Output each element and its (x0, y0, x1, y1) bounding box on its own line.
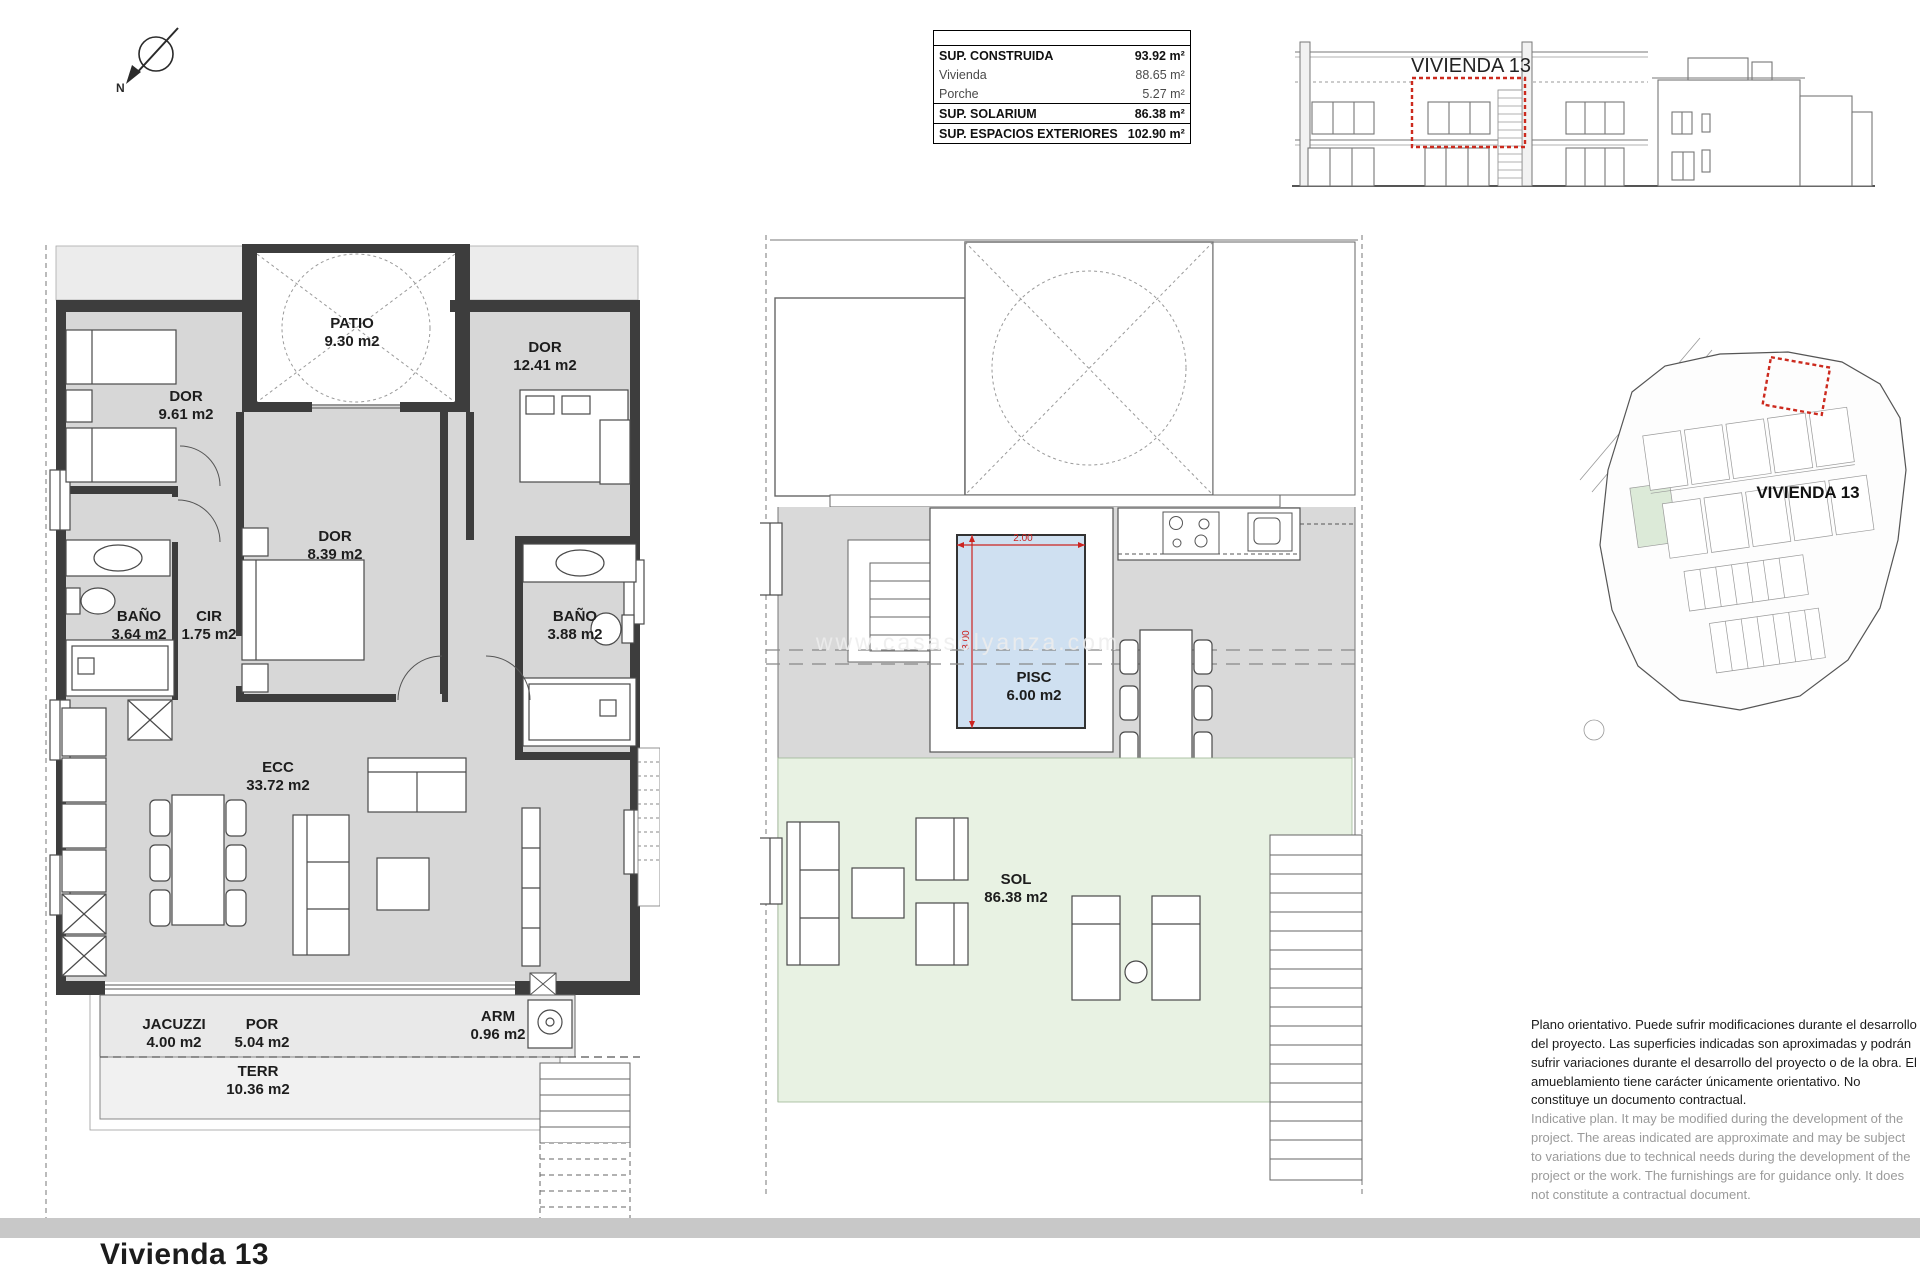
bed (520, 390, 630, 484)
disclaimer: Plano orientativo. Puede sufrir modifica… (1531, 1016, 1919, 1204)
table-row: SUP. ESPACIOS EXTERIORES 102.90 m² (934, 124, 1191, 144)
room-label: DOR (528, 339, 562, 356)
elevation-windows (1308, 102, 1624, 186)
page-title: Vivienda 13 (100, 1238, 269, 1272)
room-label: BAÑO (553, 607, 597, 625)
disclaimer-spanish: Plano orientativo. Puede sufrir modifica… (1531, 1016, 1919, 1110)
room-label: PISC (1016, 669, 1051, 686)
room-area: 3.64 m2 (111, 626, 166, 643)
room-label: SOL (1001, 871, 1032, 888)
area-label: SUP. SOLARIUM (934, 104, 1123, 124)
room-area: 10.36 m2 (226, 1081, 289, 1098)
room-label: TERR (238, 1063, 279, 1080)
room-area: 3.88 m2 (547, 626, 602, 643)
room-label: JACUZZI (142, 1016, 205, 1033)
area-value: 93.92 m² (1123, 46, 1190, 66)
table-row: SUP. CONSTRUIDA 93.92 m² (934, 46, 1191, 66)
room-area: 4.00 m2 (146, 1034, 201, 1051)
area-value: 86.38 m² (1123, 104, 1190, 124)
side-stair (638, 748, 660, 906)
room-area: 1.75 m2 (181, 626, 236, 643)
stair-hatch (1498, 90, 1522, 186)
room-area: 6.00 m2 (1006, 687, 1061, 704)
area-value: 88.65 m² (1123, 65, 1190, 84)
room-area: 33.72 m2 (246, 777, 309, 794)
elevation-unit-label: VIVIENDA 13 (1411, 55, 1531, 77)
floor-plan-solarium: 2.00 3.00 (760, 230, 1370, 1200)
room-area: 8.39 m2 (307, 546, 362, 563)
table-row (934, 31, 1191, 46)
entry-block (530, 973, 556, 995)
room-area: 86.38 m2 (984, 889, 1047, 906)
room-label: DOR (318, 528, 352, 545)
room-label: DOR (169, 388, 203, 405)
area-label: Porche (934, 84, 1123, 104)
room-label: POR (246, 1016, 279, 1033)
areas-table: SUP. CONSTRUIDA 93.92 m² Vivienda 88.65 … (933, 30, 1191, 144)
footer-bar (0, 1218, 1920, 1238)
site-unit-label: VIVIENDA 13 (1756, 483, 1859, 502)
watermark: www.casasolyanza.com (815, 629, 1120, 655)
table-row: Vivienda 88.65 m² (934, 65, 1191, 84)
area-value: 102.90 m² (1123, 124, 1190, 144)
neighbor-building (1652, 58, 1872, 186)
room-area: 9.30 m2 (324, 333, 379, 350)
boiler-closet (528, 1000, 572, 1048)
solarium-deck (778, 758, 1352, 1102)
room-area: 9.61 m2 (158, 406, 213, 423)
floor-plan-ground: DOR 9.61 m2 PATIO 9.30 m2 DOR 12.41 m2 D… (40, 240, 660, 1240)
room-label: CIR (196, 608, 222, 625)
north-arrow-icon: N (108, 18, 192, 102)
room-area: 5.04 m2 (234, 1034, 289, 1051)
table-row: Porche 5.27 m² (934, 84, 1191, 104)
area-label: Vivienda (934, 65, 1123, 84)
area-value: 5.27 m² (1123, 84, 1190, 104)
room-area: 12.41 m2 (513, 357, 576, 374)
room-label: ECC (262, 759, 294, 776)
stair-down (1270, 835, 1362, 1180)
area-label: SUP. ESPACIOS EXTERIORES (934, 124, 1123, 144)
room-label: PATIO (330, 315, 374, 332)
room-label: ARM (481, 1008, 515, 1025)
outdoor-dining-table (1120, 630, 1212, 766)
room-area: 0.96 m2 (470, 1026, 525, 1043)
dining-table (150, 795, 246, 926)
north-label: N (116, 81, 125, 95)
pool-width: 2.00 (1013, 533, 1033, 544)
stair-down (540, 1063, 630, 1223)
room-label: BAÑO (117, 607, 161, 625)
building-elevation: VIVIENDA 13 (1290, 30, 1880, 195)
site-plan: VIVIENDA 13 (1570, 330, 1920, 790)
plan-sheet: N SUP. CONSTRUIDA 93.92 m² Vivienda 88.6… (0, 0, 1920, 1280)
table-row: SUP. SOLARIUM 86.38 m² (934, 104, 1191, 124)
area-label: SUP. CONSTRUIDA (934, 46, 1123, 66)
patio-void (965, 242, 1213, 495)
disclaimer-english: Indicative plan. It may be modified duri… (1531, 1110, 1919, 1204)
